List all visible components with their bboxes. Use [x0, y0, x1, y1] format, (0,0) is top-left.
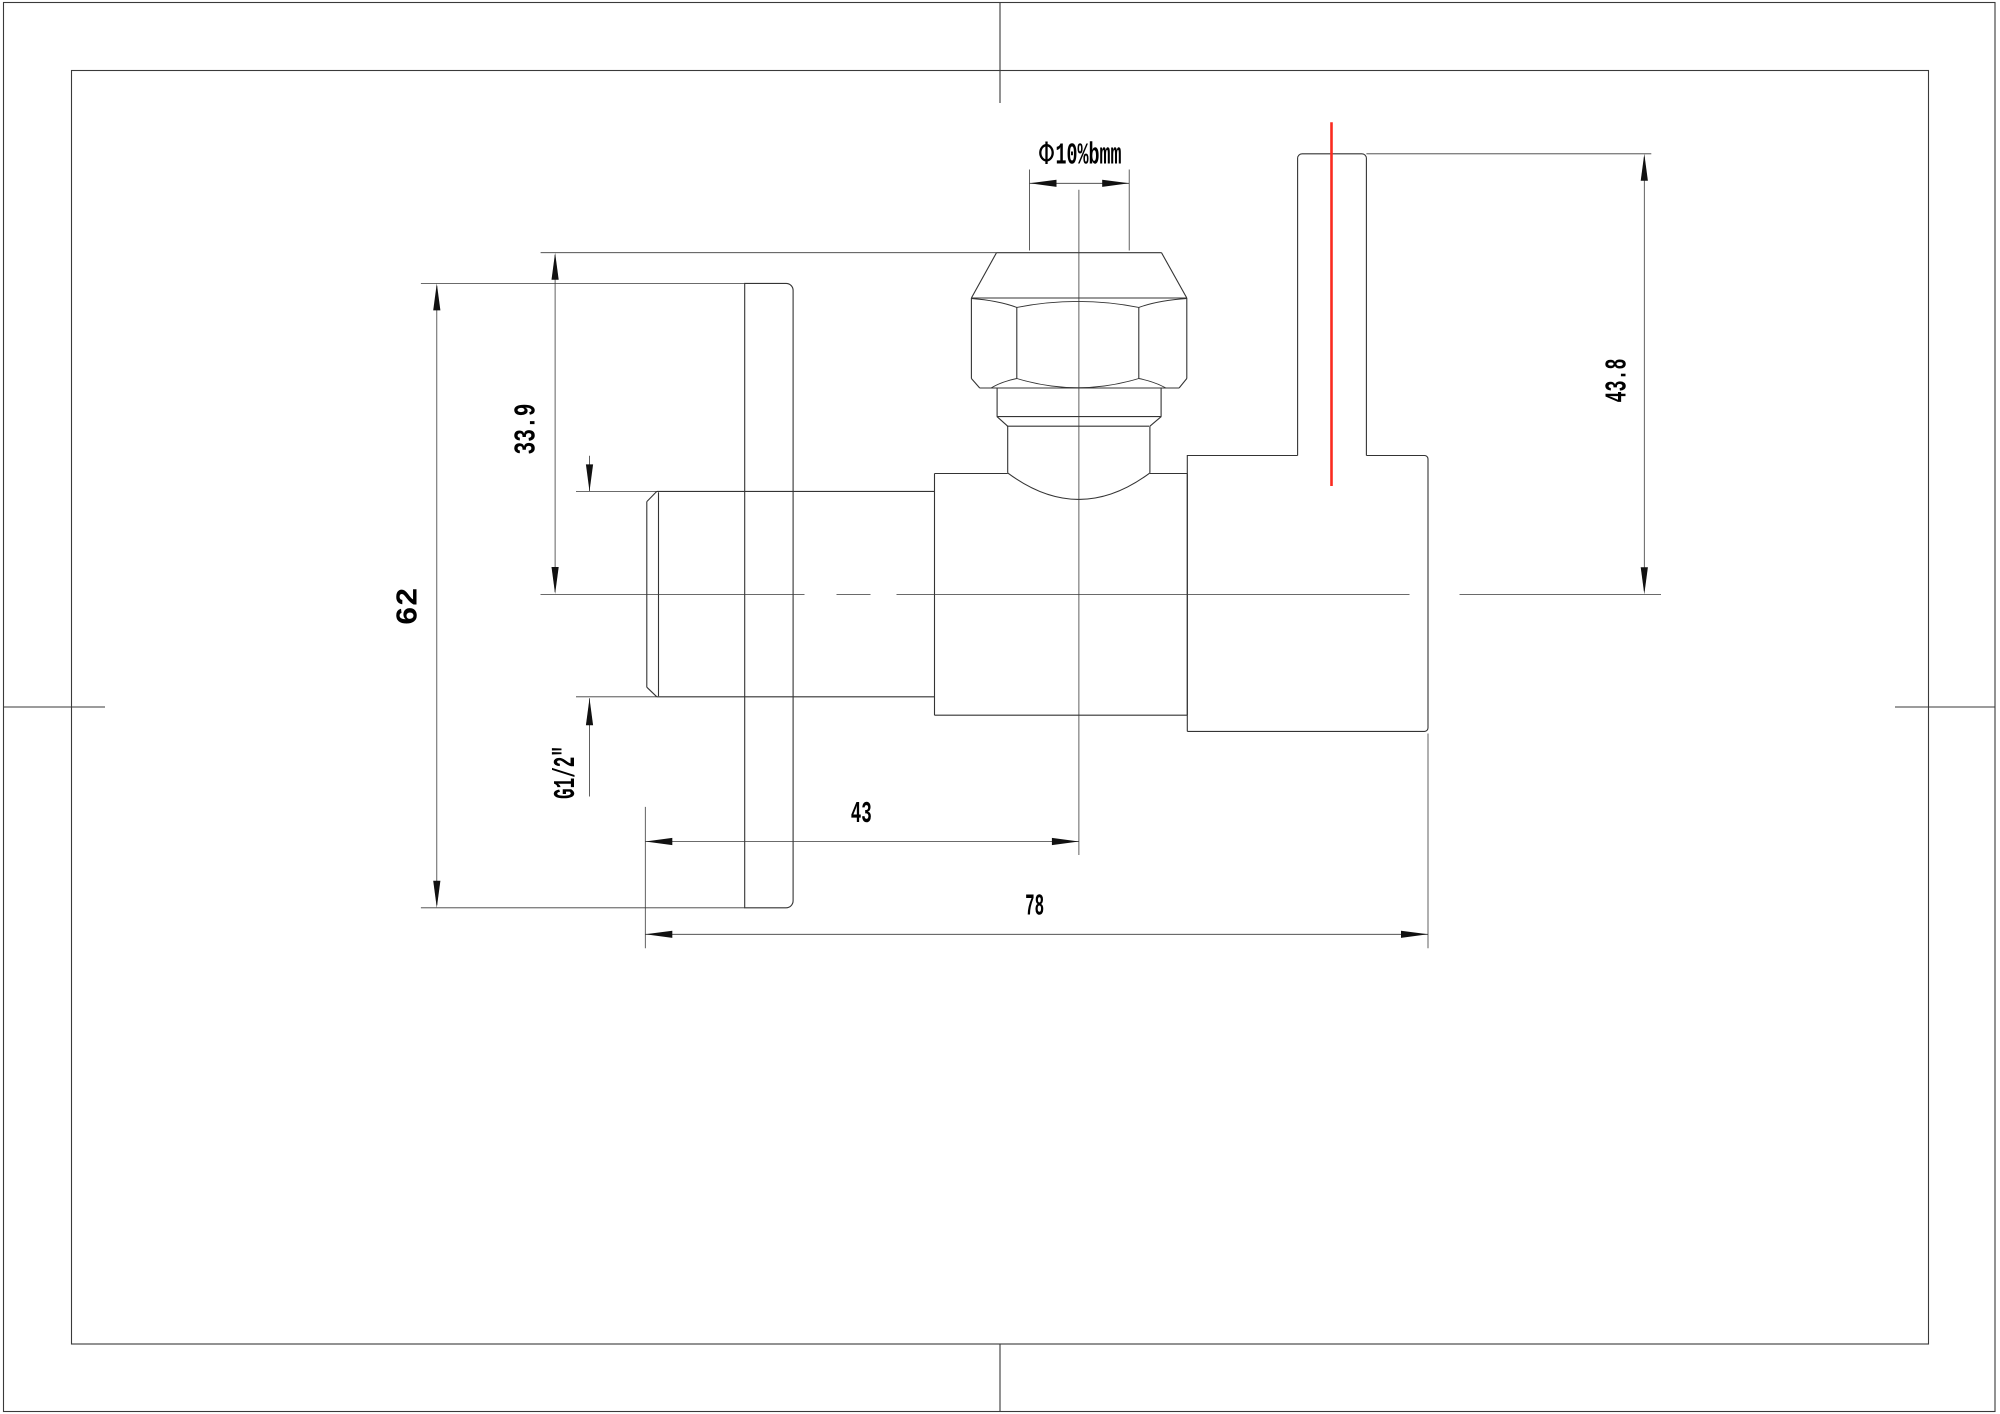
svg-text:78: 78 — [1025, 890, 1044, 925]
svg-text:43.8: 43.8 — [1600, 359, 1635, 403]
svg-text:10%bmm: 10%bmm — [1056, 139, 1122, 174]
svg-text:33.9: 33.9 — [510, 404, 545, 455]
svg-text:62: 62 — [392, 587, 427, 625]
svg-text:43: 43 — [851, 797, 872, 832]
svg-text:G1/2": G1/2" — [549, 746, 584, 799]
